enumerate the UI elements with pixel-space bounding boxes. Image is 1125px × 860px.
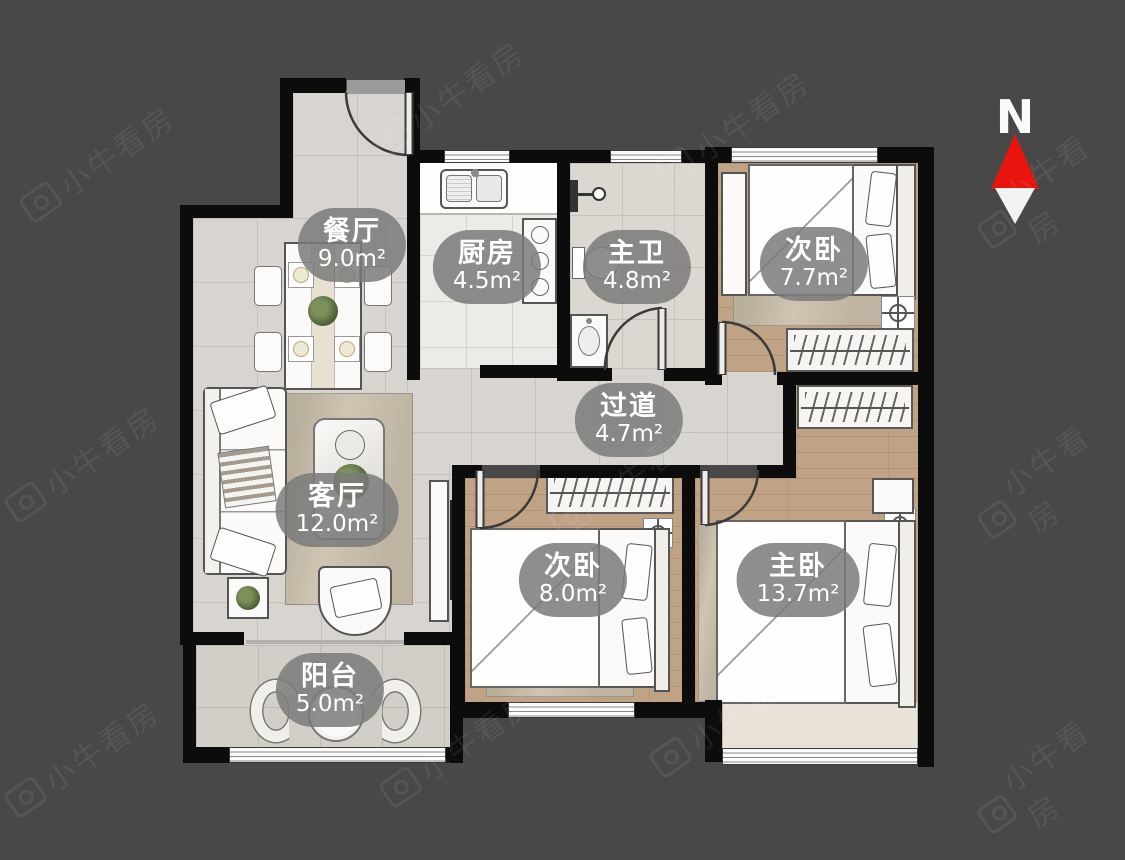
room-name: 客厅 <box>308 482 366 512</box>
room-name: 主卫 <box>608 239 666 269</box>
room-label-living: 客厅 12.0m² <box>276 473 399 547</box>
room-area: 4.7m² <box>595 422 663 448</box>
room-label-master-bedroom: 主卧 13.7m² <box>737 543 860 617</box>
room-name: 阳台 <box>301 662 359 692</box>
room-area: 8.0m² <box>539 582 607 608</box>
room-label-bedroom-south: 次卧 8.0m² <box>519 543 627 617</box>
room-name: 次卧 <box>544 552 602 582</box>
room-label-hallway: 过道 4.7m² <box>575 383 683 457</box>
room-label-master-bath: 主卫 4.8m² <box>583 230 691 304</box>
room-area: 7.7m² <box>780 266 848 292</box>
room-area: 12.0m² <box>296 512 379 538</box>
floor-plan-page: { "page": { "type": "apartment-floor-pla… <box>0 0 1125 844</box>
room-label-kitchen: 厨房 4.5m² <box>433 230 541 304</box>
north-arrow-white <box>995 188 1035 224</box>
room-area: 9.0m² <box>318 247 386 273</box>
room-label-bedroom-north: 次卧 7.7m² <box>760 227 868 301</box>
room-name: 厨房 <box>458 239 516 269</box>
master-door-arc <box>705 470 758 525</box>
north-arrow-red <box>991 134 1039 189</box>
room-name: 主卧 <box>769 552 827 582</box>
room-name: 过道 <box>600 392 658 422</box>
bedroom-north-door-arc <box>722 322 775 375</box>
door-swing-layer <box>0 0 1125 844</box>
room-label-dining: 餐厅 9.0m² <box>298 208 406 282</box>
north-indicator: N <box>960 90 1080 230</box>
bathroom-door-arc <box>605 308 662 370</box>
room-area: 13.7m² <box>757 582 840 608</box>
room-area: 4.5m² <box>453 269 521 295</box>
room-area: 5.0m² <box>296 692 364 718</box>
room-area: 4.8m² <box>603 269 671 295</box>
bedroom-south-door-arc <box>480 470 538 528</box>
room-name: 餐厅 <box>323 217 381 247</box>
room-name: 次卧 <box>785 236 843 266</box>
room-label-balcony: 阳台 5.0m² <box>276 653 384 727</box>
entrance-door-arc <box>346 92 409 155</box>
